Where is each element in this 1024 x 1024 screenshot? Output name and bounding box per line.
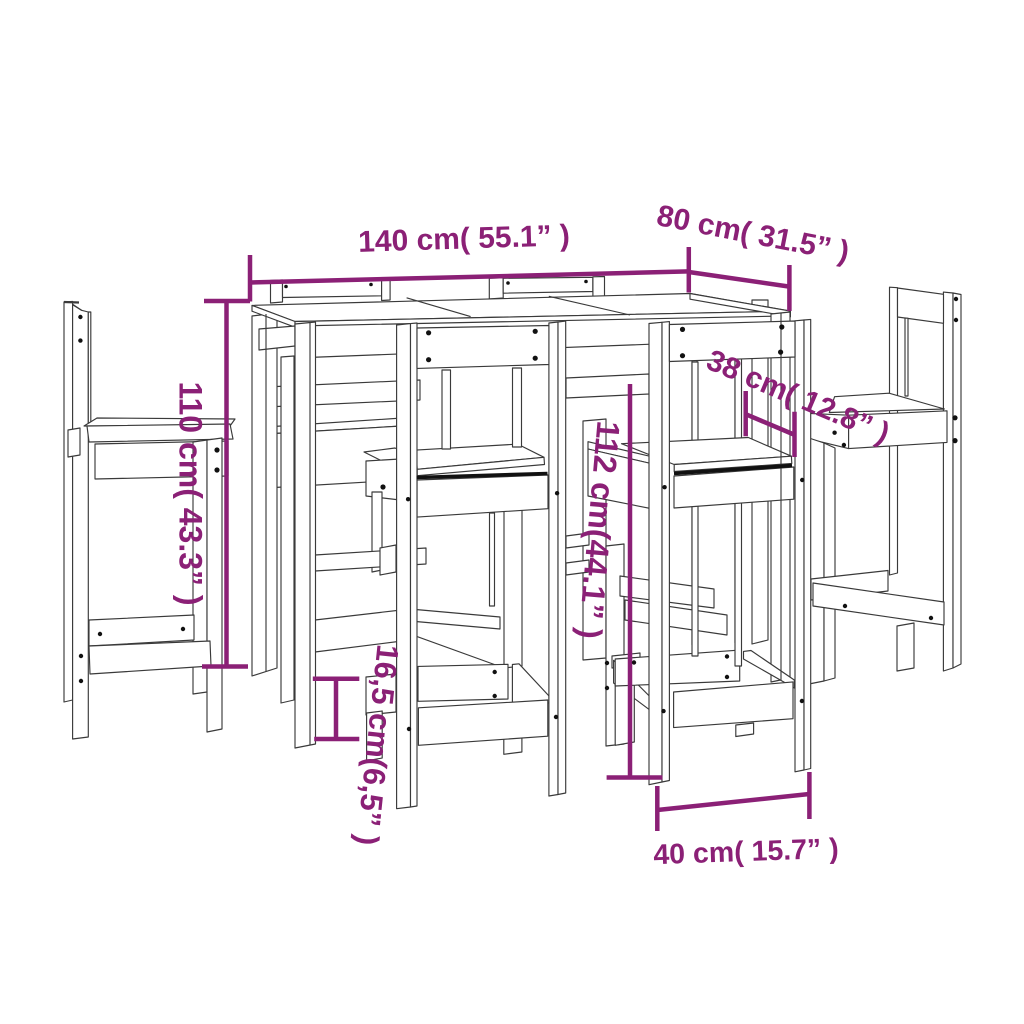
svg-text:140 cm( 55.1” ): 140 cm( 55.1” ) [358, 219, 571, 259]
svg-text:40 cm( 15.7” ): 40 cm( 15.7” ) [653, 833, 839, 871]
svg-text:110 cm( 43.3” ): 110 cm( 43.3” ) [173, 381, 209, 605]
